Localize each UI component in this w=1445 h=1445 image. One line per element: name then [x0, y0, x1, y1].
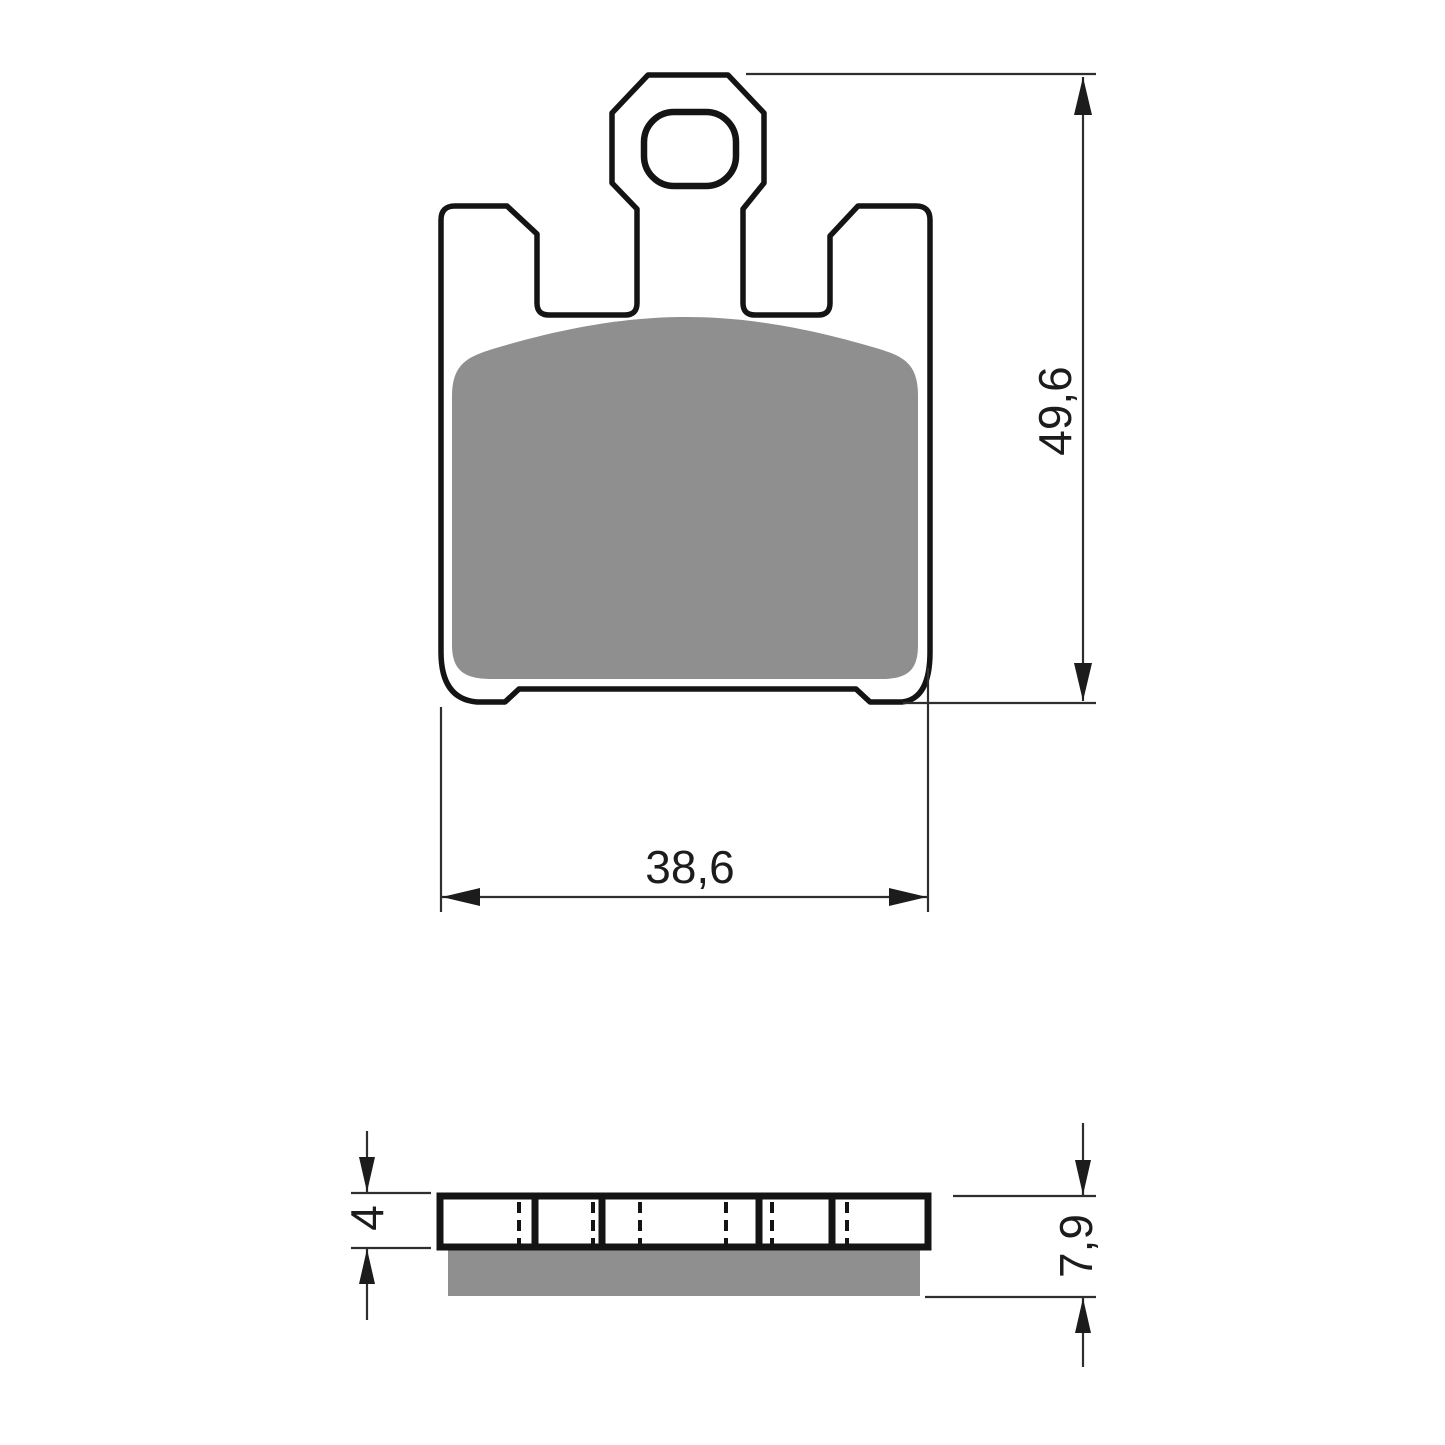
dimension-backplate-thickness-4: 4 — [341, 1131, 431, 1320]
arrowhead-up — [1075, 1298, 1091, 1333]
brake-pad-drawing: 49,6 38,6 — [0, 0, 1445, 1445]
side-view — [440, 1196, 928, 1296]
width-dim-label: 38,6 — [645, 841, 735, 893]
front-friction-material — [452, 317, 918, 679]
side-backplate — [440, 1196, 928, 1247]
pad-mounting-hole — [644, 112, 736, 186]
arrowhead-left — [442, 888, 480, 906]
drawing-canvas: 49,6 38,6 — [0, 0, 1445, 1445]
arrowhead-down — [359, 1157, 375, 1192]
arrowhead-up — [359, 1249, 375, 1284]
arrowhead-down — [1074, 663, 1092, 701]
arrowhead-up — [1074, 77, 1092, 115]
side-friction-material — [448, 1250, 920, 1296]
arrowhead-right — [889, 888, 927, 906]
backplate-thickness-label: 4 — [341, 1205, 393, 1231]
dimension-width-38-6: 38,6 — [441, 668, 928, 912]
height-dim-label: 49,6 — [1029, 366, 1081, 456]
front-view — [441, 75, 930, 702]
arrowhead-down — [1075, 1160, 1091, 1195]
dimension-total-thickness-7-9: 7,9 — [925, 1123, 1102, 1367]
total-thickness-label: 7,9 — [1050, 1214, 1102, 1278]
